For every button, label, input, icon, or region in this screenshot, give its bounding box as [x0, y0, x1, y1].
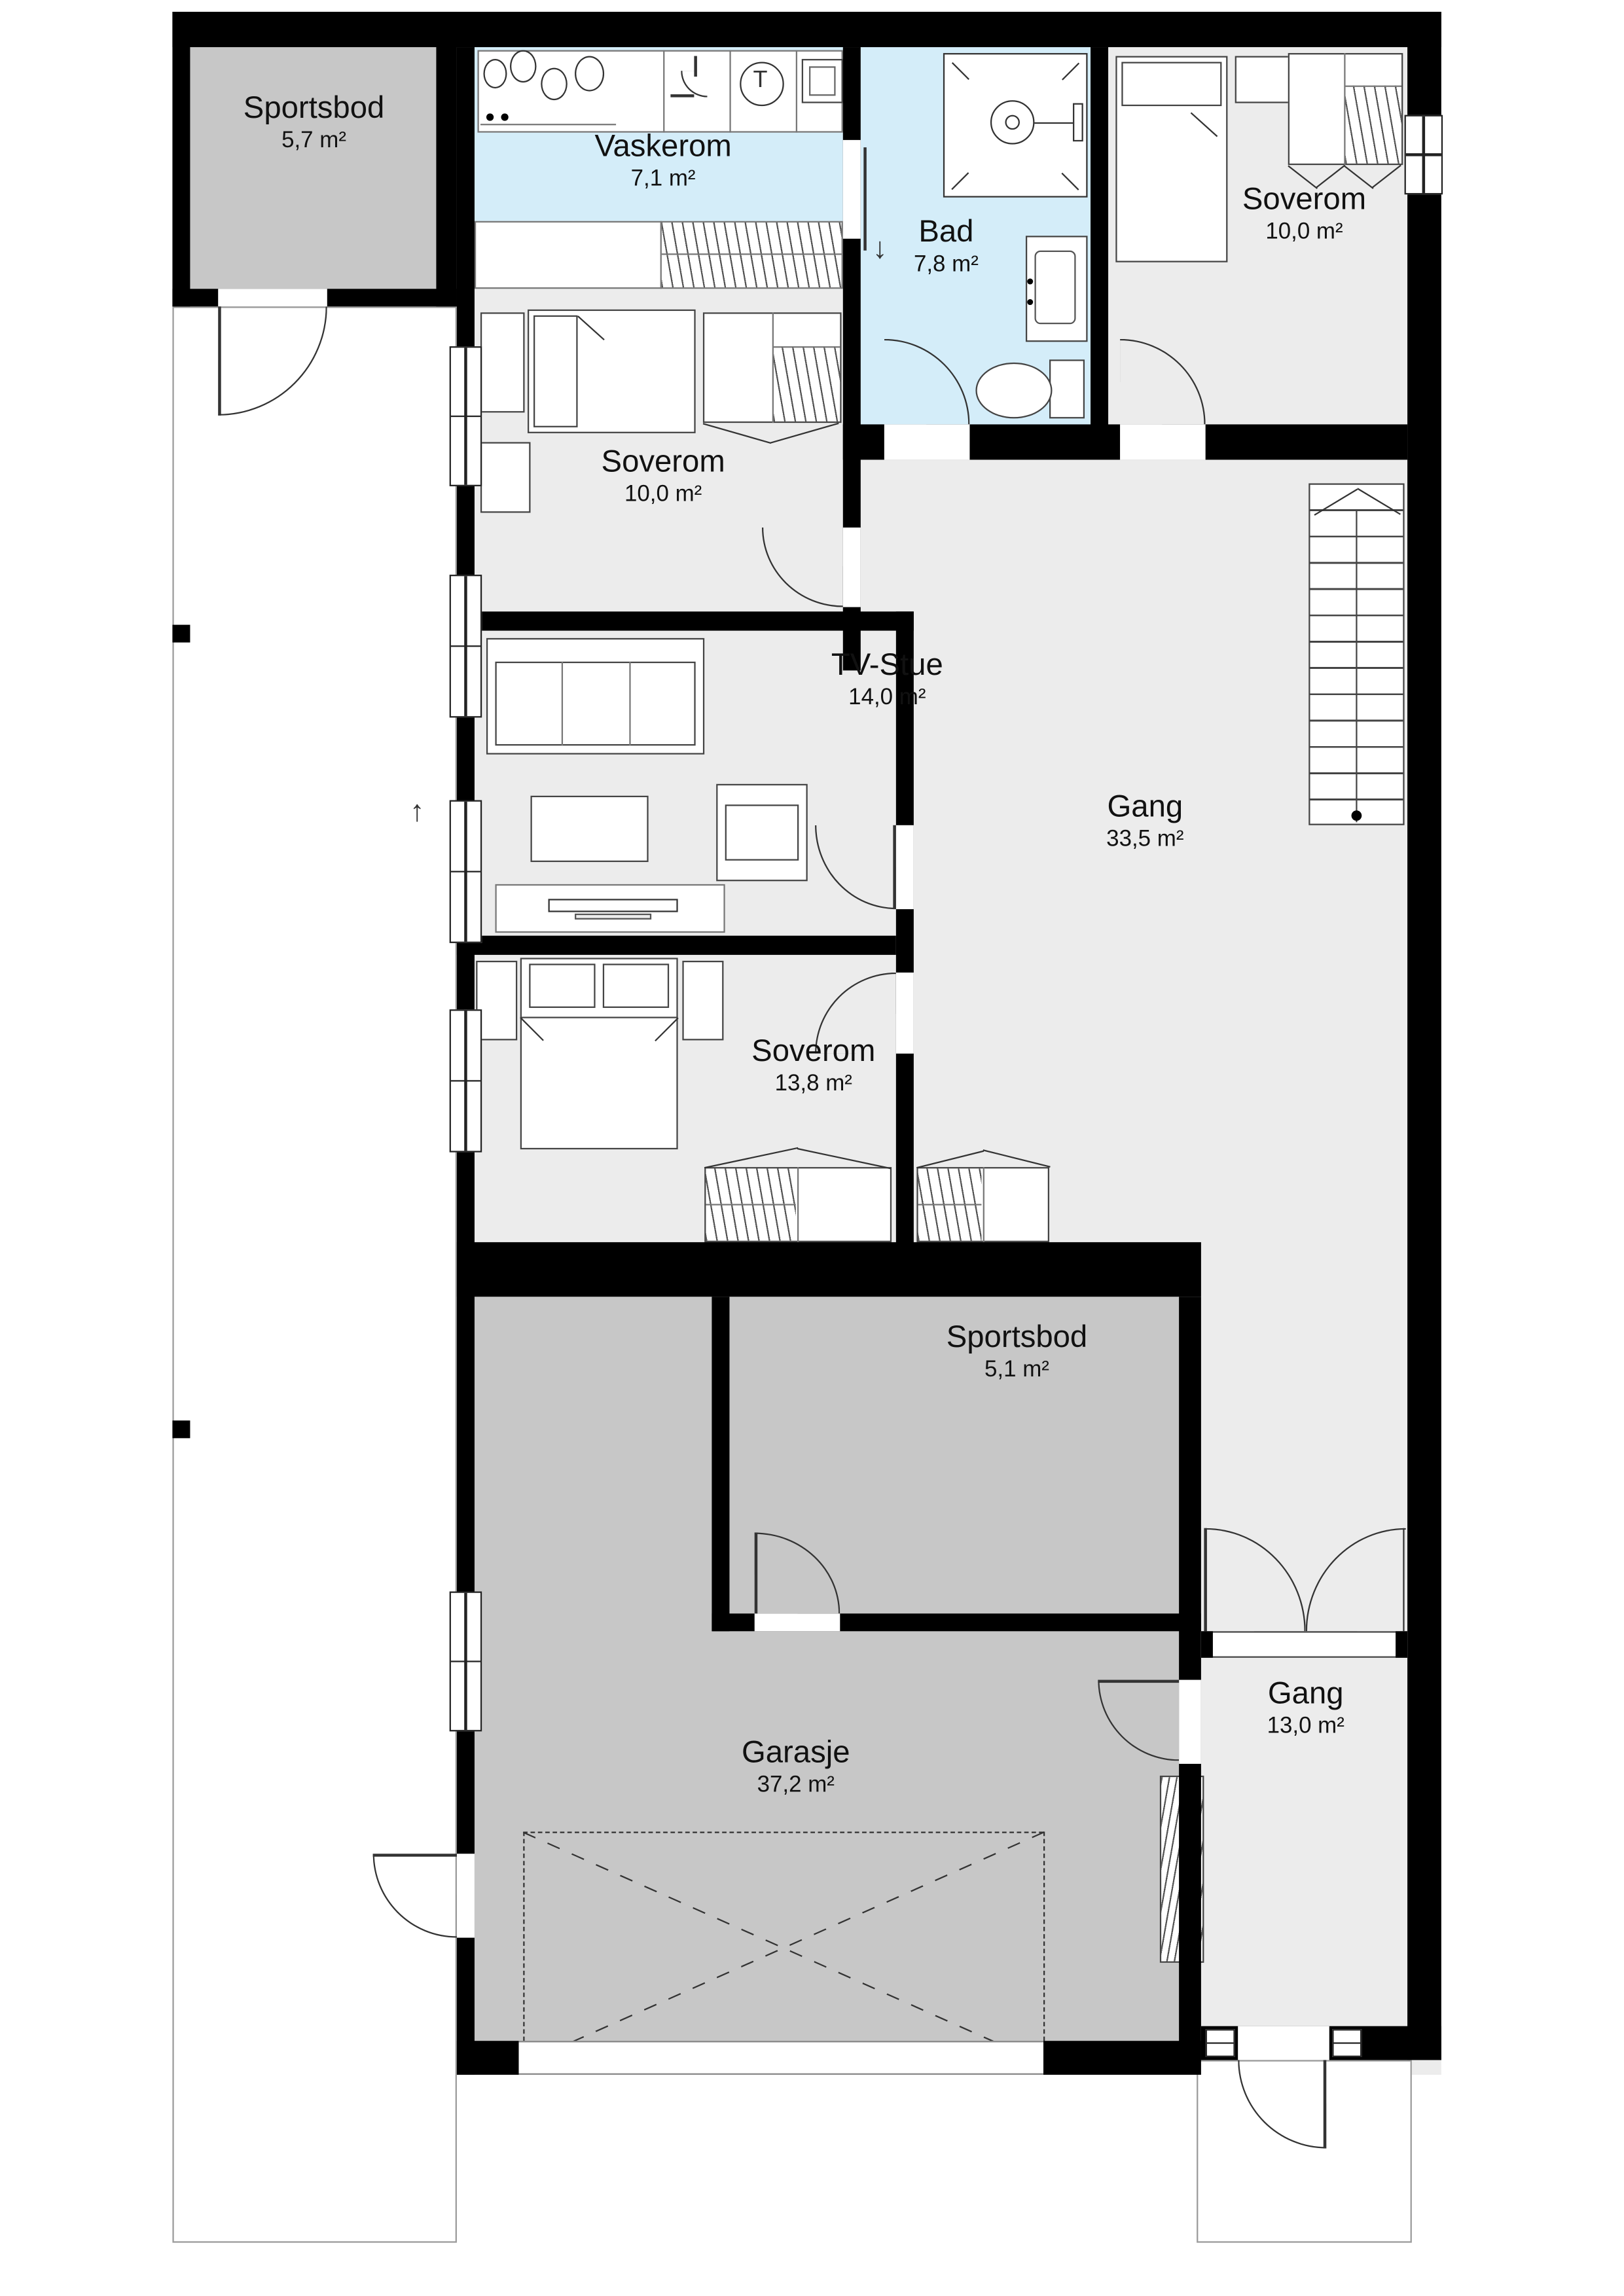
- sofa-cushion-divider: [562, 662, 563, 745]
- room-label-gang-entre: Gang13,0 m²: [1267, 1677, 1344, 1742]
- toilet-tank: [1049, 359, 1085, 418]
- room-label-tv-stue: TV-Stue14,0 m²: [831, 649, 943, 714]
- door-opening: [843, 140, 861, 239]
- dryer-symbol: T: [753, 68, 767, 95]
- nightstand: [476, 961, 517, 1041]
- bed-pillow: [1121, 62, 1221, 107]
- window: [450, 800, 482, 943]
- carport-post: [172, 1420, 190, 1438]
- wardrobe-rail: [918, 1204, 982, 1205]
- shower-head-icon: [1005, 115, 1020, 130]
- washing-machine-icon: [670, 94, 694, 96]
- door-jamb: [1396, 1631, 1407, 1658]
- nightstand: [480, 442, 531, 512]
- room-label-sportsbod-nw: Sportsbod5,7 m²: [244, 92, 385, 157]
- entrance-sidelight: [1332, 2029, 1362, 2057]
- window: [450, 1592, 482, 1732]
- coffee-table: [531, 796, 649, 862]
- armchair-seat: [725, 804, 799, 861]
- door-leaf: [1204, 1528, 1206, 1632]
- shower-valve-icon: [1073, 103, 1083, 142]
- door-leaf: [893, 825, 895, 909]
- door-leaf: [1324, 2060, 1326, 2148]
- floorplan-drawing: ↑ T ↓: [0, 0, 1624, 2296]
- door-opening: [218, 289, 327, 306]
- laundry-sink-icon: [575, 56, 604, 92]
- door-leaf: [373, 1854, 457, 1856]
- laundry-sink-icon: [483, 59, 507, 88]
- door-leaf: [1098, 1680, 1179, 1682]
- wardrobe-rail: [1346, 86, 1402, 87]
- faucet-icon: [486, 113, 494, 120]
- room-label-garasje: Garasje37,2 m²: [742, 1736, 850, 1801]
- door-opening: [843, 528, 861, 607]
- carport-post: [172, 625, 190, 643]
- wall-segment: [172, 12, 190, 306]
- window: [1405, 115, 1443, 195]
- wardrobe-rail: [662, 253, 842, 255]
- vanity-basin: [1034, 251, 1075, 325]
- room-label-sportsbod-garasje: Sportsbod5,1 m²: [947, 1320, 1088, 1386]
- door-opening: [457, 1854, 475, 1937]
- stair-center-rail: [1356, 510, 1358, 822]
- sink-edge: [480, 124, 616, 125]
- hanging-clothes-icon: [1346, 86, 1402, 164]
- wall-segment: [457, 936, 896, 955]
- toilet-bowl-icon: [975, 363, 1052, 419]
- sportsbod-nw-floor: [190, 29, 436, 289]
- wardrobe-rail: [706, 1204, 795, 1205]
- floorplan-page: ↑ T ↓: [0, 0, 1624, 2296]
- bed-pillow: [529, 963, 595, 1008]
- door-opening: [896, 973, 914, 1054]
- door-opening: [896, 825, 914, 909]
- window: [450, 1009, 482, 1152]
- door-leaf: [1402, 1528, 1404, 1632]
- wardrobe-rail: [774, 346, 840, 348]
- stair-start-dot: [1352, 810, 1362, 821]
- counter-divider: [796, 50, 797, 133]
- entrance-sidelight: [1206, 2029, 1235, 2057]
- window: [450, 575, 482, 717]
- laundry-sink-icon: [510, 50, 537, 83]
- wall-segment: [1179, 1297, 1201, 2060]
- room-label-gang: Gang33,5 m²: [1106, 790, 1183, 855]
- sofa-seat: [495, 662, 695, 745]
- wall-segment: [436, 12, 457, 306]
- parking-outline: [523, 1831, 1043, 1833]
- door-opening: [1238, 2026, 1329, 2060]
- bed-pillow: [533, 315, 578, 427]
- room-label-soverom-vest: Soverom10,0 m²: [602, 445, 725, 511]
- duvet-edge: [520, 1016, 678, 1018]
- wall-segment: [1091, 47, 1108, 442]
- room-label-bad: Bad7,8 m²: [914, 215, 979, 281]
- wardrobe-divider: [797, 1167, 799, 1242]
- door-leaf: [218, 306, 220, 416]
- door-opening: [1120, 424, 1206, 459]
- shower-arm: [1034, 122, 1079, 124]
- wall-segment: [457, 611, 914, 630]
- bed-pillow: [603, 963, 669, 1008]
- nightstand: [682, 961, 723, 1041]
- tv-icon: [549, 899, 678, 912]
- carport-arrow-up-icon: ↑: [410, 796, 425, 830]
- faucet-icon: [501, 113, 508, 120]
- door-opening: [755, 1613, 840, 1631]
- wall-segment: [457, 1242, 1201, 1297]
- tv-icon: [575, 914, 651, 920]
- vanity-knob: [1027, 299, 1033, 305]
- appliance-icon: [809, 66, 836, 96]
- drain-arrow-icon: ↓: [873, 233, 888, 267]
- sofa-cushion-divider: [629, 662, 630, 745]
- garage-door-opening: [518, 2041, 1043, 2075]
- wall-segment: [1407, 12, 1441, 2060]
- double-door-sill: [1201, 1631, 1407, 1658]
- parking-outline: [523, 1831, 524, 2062]
- door-opening: [1179, 1680, 1201, 1764]
- room-label-soverom-ne: Soverom10,0 m²: [1242, 183, 1366, 248]
- window: [450, 346, 482, 486]
- nightstand: [480, 312, 525, 412]
- door-jamb: [1201, 1631, 1213, 1658]
- vanity-knob: [1027, 279, 1033, 285]
- sliding-door: [863, 147, 865, 251]
- room-label-vaskerom: Vaskerom7,1 m²: [594, 130, 731, 195]
- wall-segment: [172, 12, 1441, 47]
- carport-strip: [172, 306, 457, 2242]
- parking-outline: [1043, 1831, 1045, 2062]
- counter-divider: [729, 50, 731, 133]
- hanging-clothes-icon: [774, 346, 840, 422]
- wardrobe-divider: [983, 1167, 984, 1242]
- washing-machine-icon: [694, 56, 696, 77]
- wall-segment: [712, 1297, 729, 1631]
- laundry-sink-icon: [541, 68, 568, 101]
- door-leaf: [755, 1532, 757, 1613]
- counter-divider: [663, 50, 664, 133]
- room-label-soverom-sor: Soverom13,8 m²: [751, 1034, 875, 1100]
- door-opening: [884, 424, 970, 459]
